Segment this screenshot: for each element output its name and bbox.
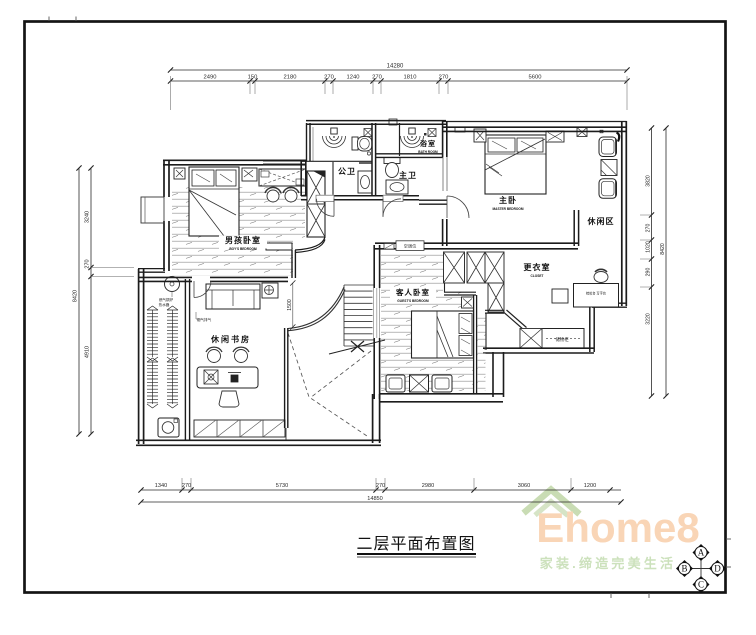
svg-text:270: 270 xyxy=(324,75,334,81)
svg-text:3060: 3060 xyxy=(518,483,530,489)
svg-text:男孩卧室: 男孩卧室 xyxy=(225,235,261,245)
svg-text:2490: 2490 xyxy=(204,75,217,81)
svg-text:BOY'S BEDROOM: BOY'S BEDROOM xyxy=(229,247,257,251)
svg-text:1340: 1340 xyxy=(155,483,167,489)
svg-text:BATH ROOM: BATH ROOM xyxy=(418,150,438,154)
svg-text:3240: 3240 xyxy=(85,211,91,223)
svg-text:B: B xyxy=(681,564,687,574)
svg-text:储物柜: 储物柜 xyxy=(555,336,569,343)
svg-text:A: A xyxy=(698,548,705,558)
svg-text:270: 270 xyxy=(439,75,449,81)
svg-text:客人卧室: 客人卧室 xyxy=(395,287,430,297)
svg-text:8420: 8420 xyxy=(73,290,79,302)
svg-text:1200: 1200 xyxy=(584,483,596,489)
svg-text:休闲书房: 休闲书房 xyxy=(210,334,251,344)
svg-text:4910: 4910 xyxy=(85,346,91,358)
svg-text:270: 270 xyxy=(376,483,385,489)
svg-text:270: 270 xyxy=(182,483,191,489)
svg-text:270: 270 xyxy=(372,75,382,81)
svg-text:梳妆台 写字台: 梳妆台 写字台 xyxy=(586,291,606,296)
svg-text:更衣室: 更衣室 xyxy=(524,262,551,272)
svg-text:2180: 2180 xyxy=(284,75,297,81)
svg-text:150: 150 xyxy=(248,75,258,81)
svg-text:CLOSET: CLOSET xyxy=(531,274,544,278)
svg-text:空调位: 空调位 xyxy=(404,243,417,250)
svg-text:休闲区: 休闲区 xyxy=(587,216,615,226)
svg-text:1810: 1810 xyxy=(404,75,417,81)
svg-text:家装.缔造完美生活: 家装.缔造完美生活 xyxy=(540,556,676,571)
svg-text:GUEST'S BEDROOM: GUEST'S BEDROOM xyxy=(397,299,429,303)
svg-text:D: D xyxy=(714,564,721,574)
svg-text:290: 290 xyxy=(646,268,652,277)
svg-text:270: 270 xyxy=(85,259,91,268)
svg-text:14850: 14850 xyxy=(367,496,383,502)
svg-text:燃气锅炉: 燃气锅炉 xyxy=(159,297,174,302)
svg-text:1500: 1500 xyxy=(287,299,293,311)
svg-text:公卫: 公卫 xyxy=(338,167,356,176)
svg-text:8420: 8420 xyxy=(660,243,666,255)
svg-text:1020: 1020 xyxy=(646,241,652,253)
svg-text:浴室: 浴室 xyxy=(420,139,436,148)
svg-text:MASTER BEDROOM: MASTER BEDROOM xyxy=(493,207,524,211)
svg-text:14280: 14280 xyxy=(387,64,404,70)
svg-text:2980: 2980 xyxy=(422,483,434,489)
svg-text:二层平面布置图: 二层平面布置图 xyxy=(356,535,475,553)
svg-text:270: 270 xyxy=(646,224,652,233)
svg-text:3820: 3820 xyxy=(646,175,652,187)
svg-text:主卧: 主卧 xyxy=(499,195,517,205)
svg-text:5600: 5600 xyxy=(529,75,542,81)
svg-text:C: C xyxy=(698,580,704,590)
svg-text:烟气排气: 烟气排气 xyxy=(197,317,212,322)
svg-text:3220: 3220 xyxy=(646,313,652,325)
svg-text:主卫: 主卫 xyxy=(399,170,417,180)
svg-text:1240: 1240 xyxy=(347,75,360,81)
svg-text:5730: 5730 xyxy=(276,483,288,489)
svg-text:热水器: 热水器 xyxy=(159,302,170,307)
svg-text:Ehome8: Ehome8 xyxy=(536,504,699,551)
